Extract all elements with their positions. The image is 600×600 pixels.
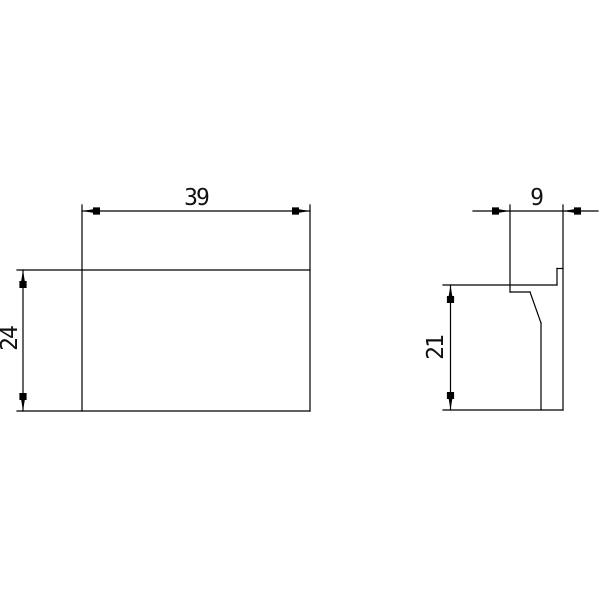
dimension-arrow-right-icon bbox=[292, 207, 310, 214]
dimension-arrow-left-icon bbox=[82, 207, 100, 214]
dimension-arrow-right-icon bbox=[492, 207, 510, 214]
dim-side-height: 21 bbox=[423, 285, 454, 410]
dim-side-depth: 9 bbox=[473, 185, 598, 215]
dim-label-front-width: 39 bbox=[184, 185, 209, 211]
front-view bbox=[17, 205, 310, 411]
dimension-arrow-down-icon bbox=[19, 393, 26, 411]
dimension-drawing: 39 24 9 bbox=[0, 0, 600, 600]
dim-label-front-height: 24 bbox=[0, 326, 23, 351]
dim-label-side-height: 21 bbox=[423, 335, 449, 360]
side-diagonal-edge bbox=[530, 292, 541, 323]
dimension-arrow-down-icon bbox=[447, 392, 454, 410]
side-view bbox=[443, 205, 563, 410]
dim-front-height: 24 bbox=[0, 270, 27, 411]
dimension-arrow-left-icon bbox=[563, 207, 581, 214]
dimension-arrow-up-icon bbox=[447, 285, 454, 303]
dimension-arrow-up-icon bbox=[19, 270, 26, 288]
technical-drawing-canvas: 39 24 9 bbox=[0, 0, 600, 600]
dim-front-width: 39 bbox=[82, 185, 310, 215]
dim-label-side-depth: 9 bbox=[530, 185, 543, 211]
